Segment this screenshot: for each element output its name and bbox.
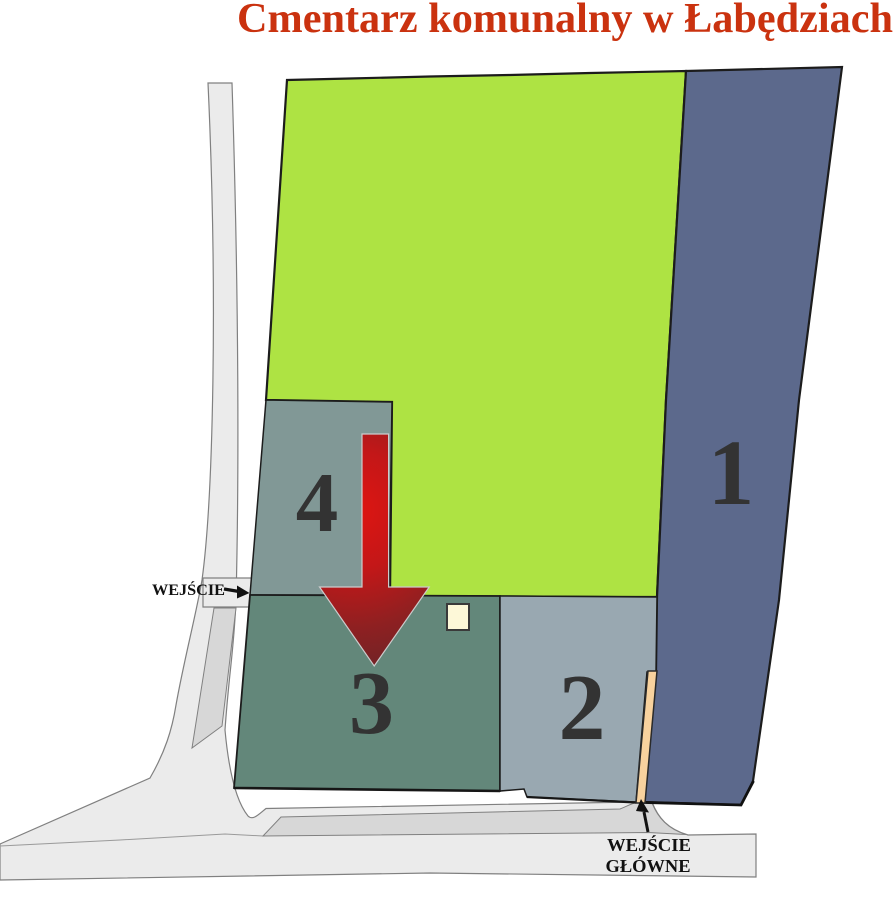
svg-text:1: 1	[708, 422, 755, 525]
svg-text:GŁÓWNE: GŁÓWNE	[606, 856, 691, 876]
svg-text:WEJŚCIE: WEJŚCIE	[152, 582, 225, 599]
svg-text:2: 2	[559, 656, 606, 760]
svg-text:3: 3	[349, 654, 394, 753]
svg-text:WEJŚCIE: WEJŚCIE	[607, 835, 691, 855]
svg-text:4: 4	[296, 456, 339, 550]
svg-text:Cmentarz komunalny w Łabędziac: Cmentarz komunalny w Łabędziach	[237, 0, 893, 42]
